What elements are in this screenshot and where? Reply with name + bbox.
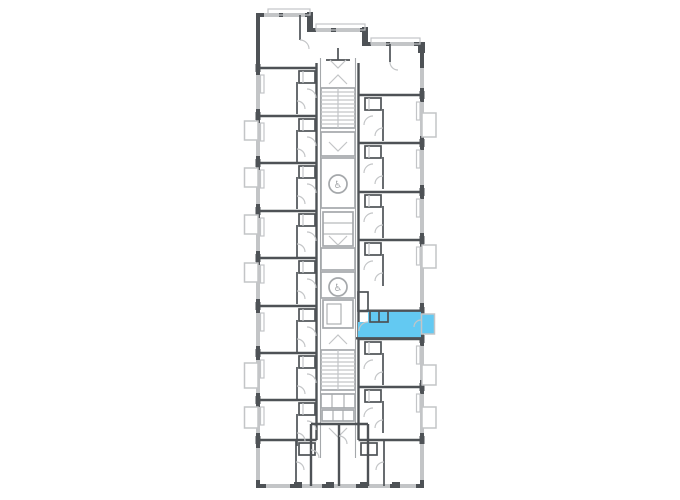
accessible-elevator-bottom: ♿ [321,272,355,298]
elevator-lobby [321,132,355,156]
facade-windows [258,15,422,486]
utility-shafts [321,394,355,421]
service-shaft [321,248,355,270]
accessible-elevator-top: ♿ [321,158,355,208]
selected-unit-area[interactable] [358,311,421,338]
building-core: ♿ ♿ [321,48,355,437]
building-outline [258,12,425,486]
staircase-bottom [321,350,355,390]
selected-unit[interactable] [356,311,435,339]
elevator-shafts-mid [323,212,353,246]
selected-unit-balcony [422,314,435,334]
floor-plan-svg: ♿ ♿ [0,0,680,500]
right-wing-units [358,44,422,486]
left-wing-units [258,15,317,486]
staircase-top [321,88,355,128]
accessible-elevator-glyph: ♿ [334,180,343,191]
machine-room [323,300,353,328]
accessible-elevator-glyph: ♿ [334,283,343,294]
floor-plan-canvas: ♿ ♿ [0,0,680,500]
